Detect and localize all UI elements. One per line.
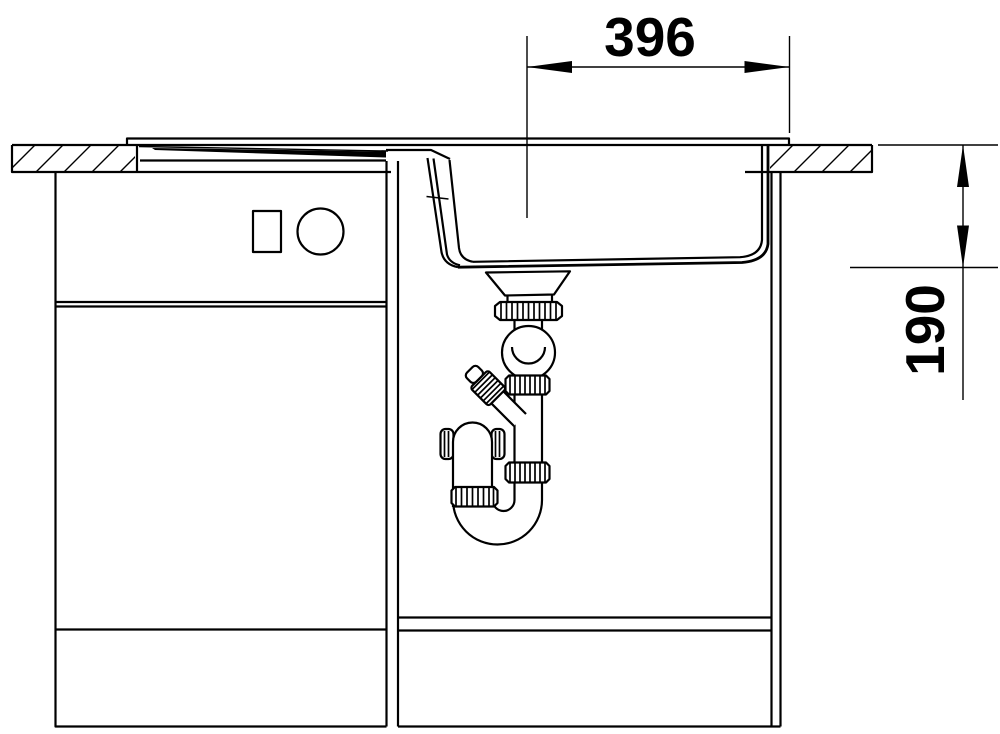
- technical-drawing-page: 396 190: [0, 0, 1000, 734]
- countertop: [8, 145, 877, 172]
- sink-unit: [127, 139, 789, 303]
- hatch-right: [766, 145, 877, 172]
- trap-nut-4: [452, 487, 498, 507]
- arrow-left: [527, 61, 572, 73]
- sink-cross-section-drawing: 396 190: [0, 0, 1000, 734]
- hatch-left: [8, 145, 147, 172]
- sink-front-rail: [386, 150, 450, 159]
- trap-nut-3: [506, 463, 550, 483]
- basin-left-wall-inner: [450, 160, 474, 262]
- drain-flange-funnel: [486, 271, 570, 295]
- elbow-knurl-left: [441, 429, 454, 459]
- cabinet-gap-lines: [387, 161, 399, 727]
- drain-trap: [441, 302, 563, 545]
- elbow-knurl-right: [492, 429, 505, 459]
- dimension-right-190: 190: [850, 145, 998, 400]
- arrow-right: [745, 61, 790, 73]
- cabinet-right-plinth-lines: [398, 618, 772, 631]
- basin-wall-joint-tick: [427, 197, 449, 200]
- trap-nut-2: [506, 376, 550, 395]
- basin-left-wall-outer: [428, 158, 459, 267]
- switch-symbol-circle: [298, 209, 344, 255]
- ball-joint: [502, 326, 555, 379]
- arrow-up: [957, 145, 969, 187]
- cabinet-left-drawer-line: [56, 302, 387, 307]
- basin-floor-inner-and-right-wall: [473, 146, 762, 262]
- dimension-right-value: 190: [894, 284, 956, 376]
- cabinet-left-outline: [56, 172, 387, 727]
- dimension-top-value: 396: [604, 6, 696, 68]
- countertop-right-block: [745, 145, 872, 172]
- switch-symbol-square: [253, 211, 281, 252]
- arrow-down: [957, 226, 969, 268]
- cabinet-left: [56, 172, 387, 727]
- dimension-top-396: 396: [527, 6, 790, 218]
- basin-floor-outer-and-right-wall: [458, 146, 768, 267]
